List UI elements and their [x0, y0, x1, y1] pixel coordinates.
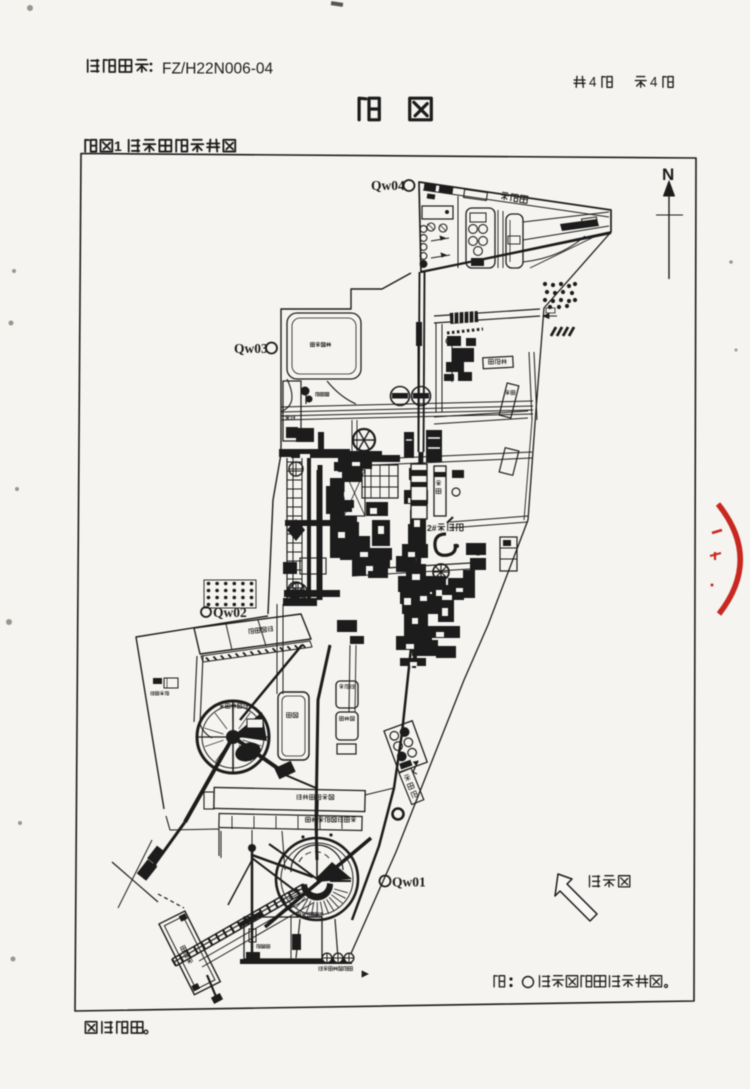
svg-text:1: 1	[114, 138, 122, 154]
svg-text:4: 4	[589, 75, 597, 90]
svg-text:4: 4	[650, 75, 658, 90]
svg-text:FZ/H22N006-04: FZ/H22N006-04	[162, 61, 274, 78]
svg-text:N: N	[662, 165, 674, 184]
svg-text:Qw04: Qw04	[371, 178, 405, 193]
svg-text:Qw02: Qw02	[213, 605, 247, 620]
svg-text:2#: 2#	[427, 523, 437, 533]
svg-text:Qw01: Qw01	[392, 875, 426, 890]
svg-text:Qw03: Qw03	[234, 341, 268, 356]
